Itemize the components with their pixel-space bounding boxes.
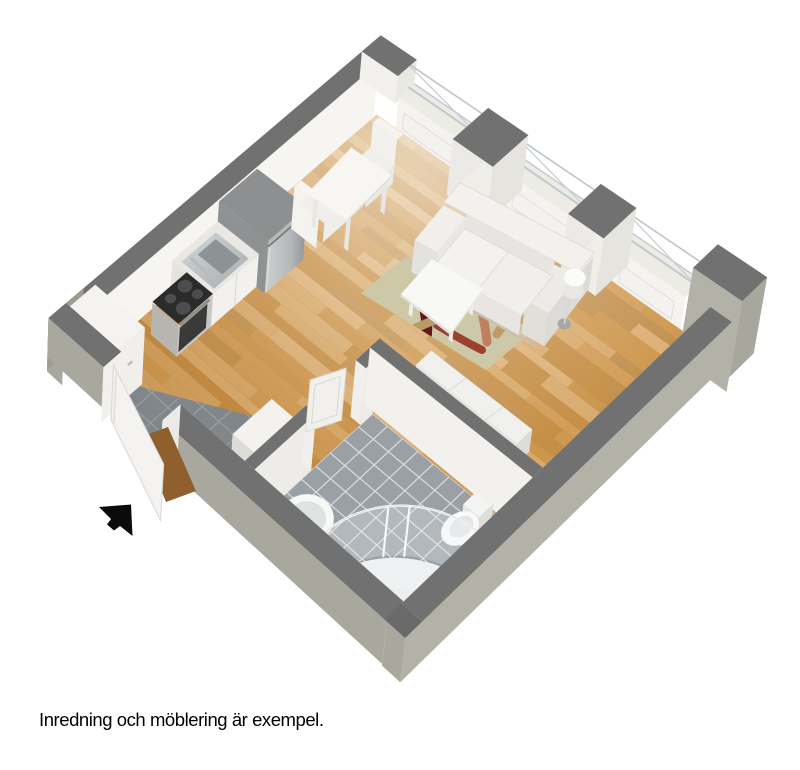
svg-text:Inredning och möblering är exe: Inredning och möblering är exempel. — [39, 709, 324, 730]
